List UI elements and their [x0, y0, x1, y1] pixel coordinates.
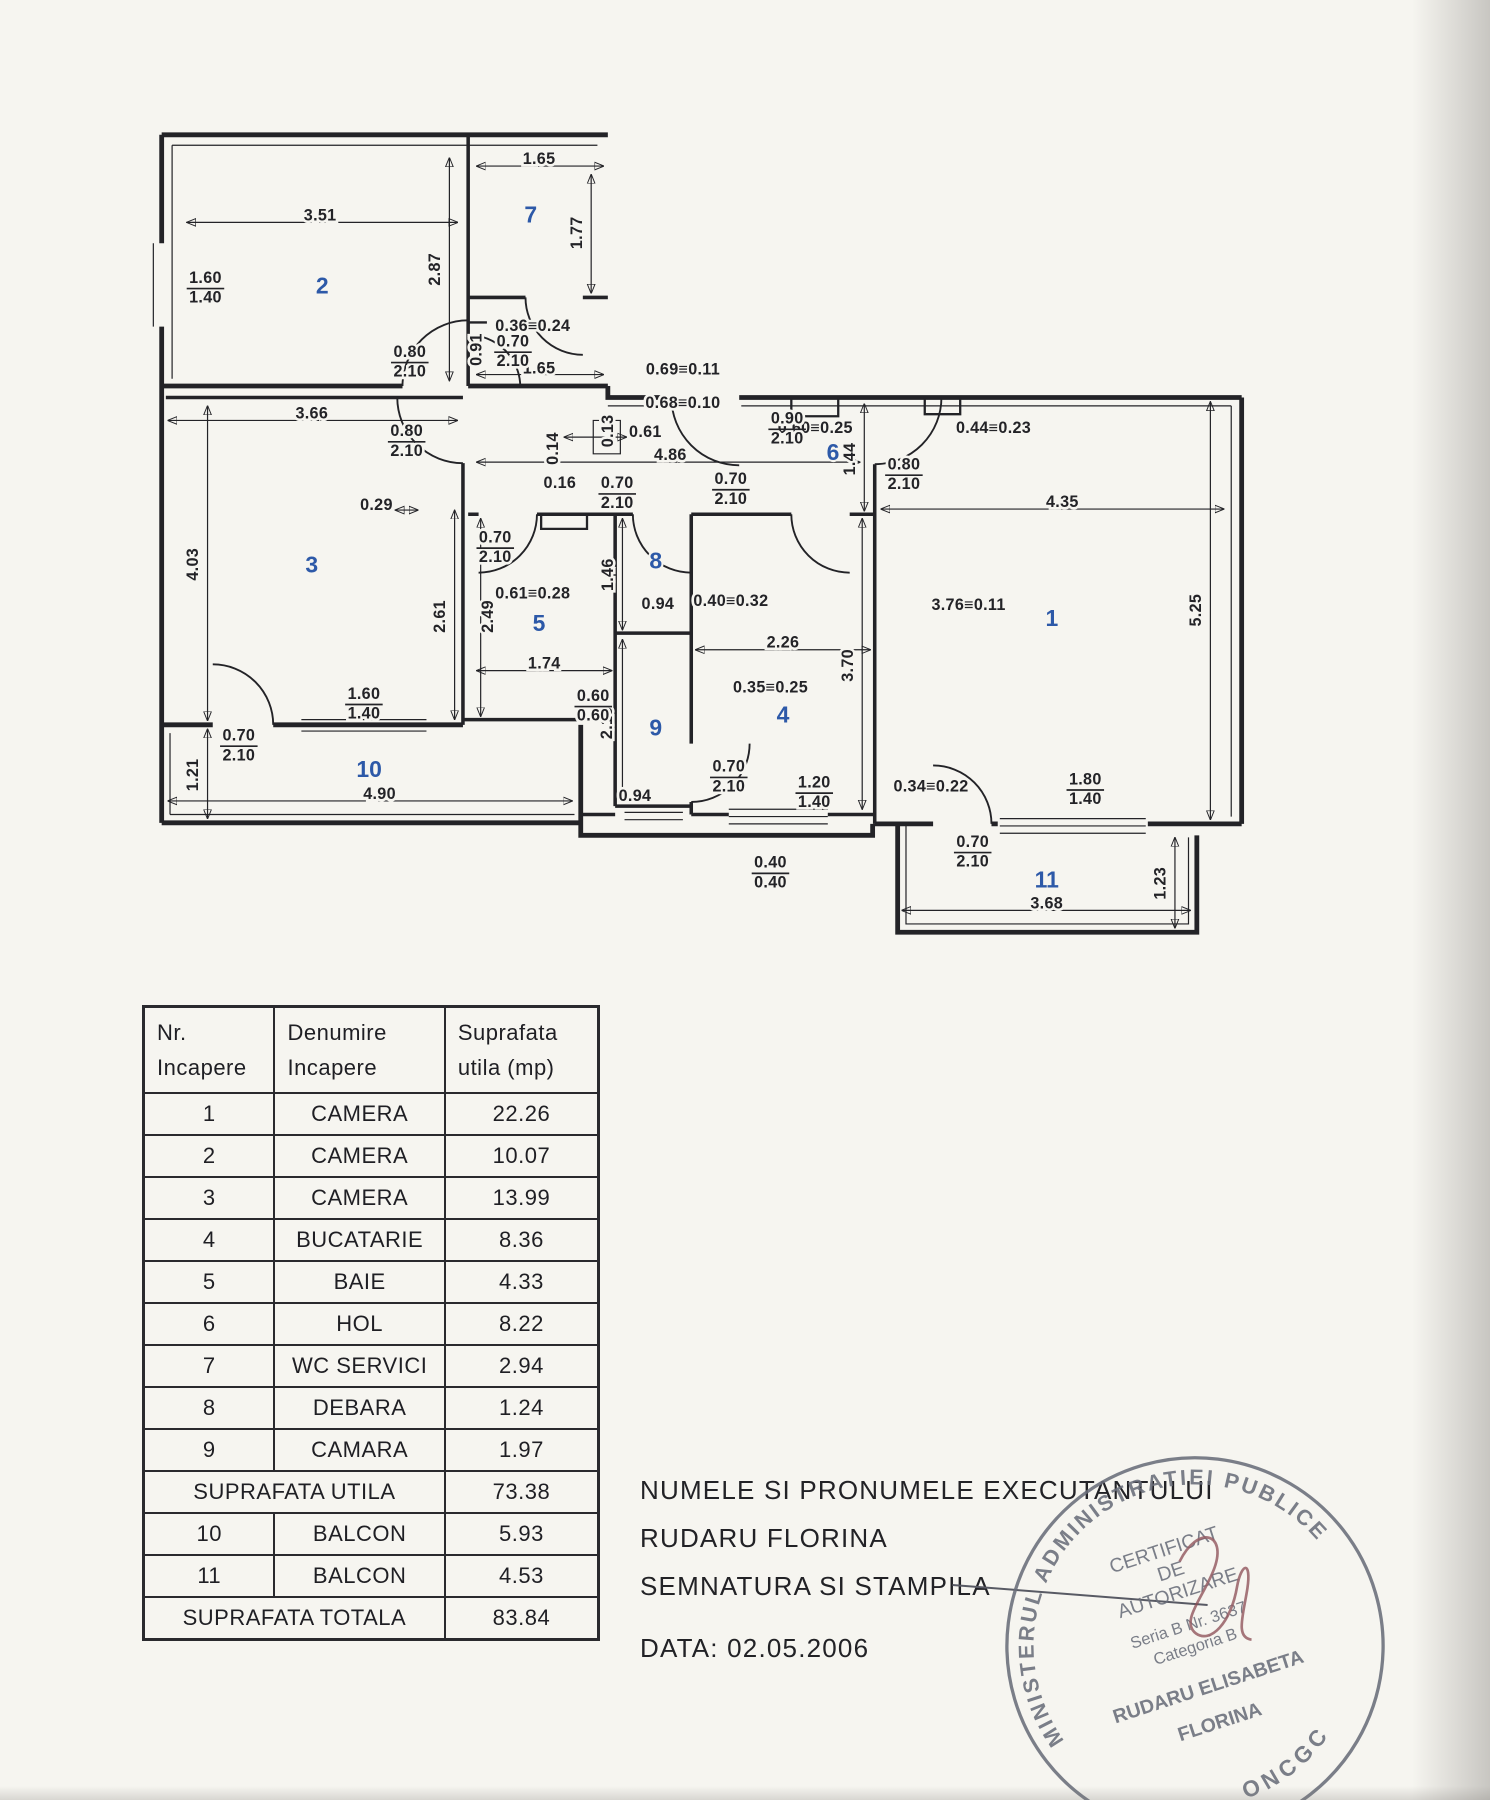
dimension-label: 0.60: [577, 687, 610, 705]
room-number: 3: [305, 552, 318, 578]
row-name: HOL: [274, 1303, 444, 1345]
room-area-table: Nr.Incapere DenumireIncapere Suprafataut…: [142, 1005, 600, 1641]
dimension-label: 0.70: [497, 332, 530, 350]
dimension-label: 0.80: [393, 343, 426, 361]
table-row: SUPRAFATA TOTALA83.84: [144, 1597, 599, 1640]
dimension-label: 2.10: [771, 429, 804, 447]
row-nr: 11: [144, 1555, 275, 1597]
dimension-label: 2.10: [601, 494, 634, 512]
dimension-label: 3.70: [839, 649, 857, 682]
plan-labels: 3.511.651.650.36≡0.240.69≡0.110.68≡0.100…: [184, 150, 1205, 912]
dimension-label: 0.80: [888, 455, 921, 473]
row-area: 22.26: [445, 1093, 599, 1135]
scan-edge-shadow-bottom: [0, 1786, 1490, 1800]
room-number: 11: [1035, 866, 1059, 892]
row-area: 5.93: [445, 1513, 599, 1555]
room-number: 5: [533, 610, 546, 636]
row-name: CAMERA: [274, 1135, 444, 1177]
table-row: 6HOL8.22: [144, 1303, 599, 1345]
dimension-label: 4.35: [1046, 493, 1079, 511]
row-nr: 2: [144, 1135, 275, 1177]
row-nr: 10: [144, 1513, 275, 1555]
dimension-label: 0.70: [601, 474, 634, 492]
table-row: 9CAMARA1.97: [144, 1429, 599, 1471]
table-row: 3CAMERA13.99: [144, 1177, 599, 1219]
dimension-label: 4.03: [184, 548, 202, 581]
dimension-label: 0.29: [360, 496, 393, 514]
row-nr: 5: [144, 1261, 275, 1303]
dimension-label: 1.60: [189, 269, 222, 287]
dimension-label: 2.61: [431, 600, 449, 633]
dimension-label: 2.10: [497, 352, 530, 370]
room-number: 8: [649, 547, 662, 573]
table-row: 5BAIE4.33: [144, 1261, 599, 1303]
dimension-label: 1.60: [348, 685, 381, 703]
dimension-label: 2.10: [888, 475, 921, 493]
dimension-label: 3.51: [304, 206, 337, 224]
room-number: 9: [649, 714, 662, 740]
dimension-label: 0.16: [544, 474, 577, 492]
date-label: DATA: 02.05.2006: [640, 1633, 869, 1664]
dimension-label: 0.70: [956, 833, 989, 851]
table-row: 2CAMERA10.07: [144, 1135, 599, 1177]
row-name: WC SERVICI: [274, 1345, 444, 1387]
dimension-label: 1.44: [841, 443, 859, 476]
dimension-label: 3.76≡0.11: [931, 596, 1005, 614]
row-label: SUPRAFATA TOTALA: [144, 1597, 445, 1640]
row-name: BALCON: [274, 1513, 444, 1555]
svg-text:FLORINA: FLORINA: [1175, 1698, 1264, 1746]
dimension-label: 0.70: [715, 470, 748, 488]
dimension-label: 0.13: [599, 415, 617, 448]
table-row: 7WC SERVICI2.94: [144, 1345, 599, 1387]
table-row: 4BUCATARIE8.36: [144, 1219, 599, 1261]
dimension-label: 0.34≡0.22: [893, 778, 968, 796]
dimension-label: 1.40: [189, 289, 222, 307]
stamp-center-text: CERTIFICAT DE AUTORIZARE Seria B Nr. 363…: [1066, 1509, 1318, 1763]
dimension-label: 2.10: [479, 548, 512, 566]
dimension-label: 1.40: [1069, 790, 1102, 808]
dimension-label: 0.40: [754, 854, 787, 872]
room-number: 4: [777, 702, 790, 728]
dimension-label: 1.21: [184, 759, 202, 792]
floor-plan-drawing: 3.511.651.650.36≡0.240.69≡0.110.68≡0.100…: [145, 118, 1250, 947]
row-area: 10.07: [445, 1135, 599, 1177]
dimension-label: 1.40: [798, 793, 831, 811]
row-nr: 4: [144, 1219, 275, 1261]
dimension-label: 0.70: [479, 528, 512, 546]
dimension-label: 0.60: [577, 707, 610, 725]
dimension-label: 0.90: [771, 410, 804, 428]
row-name: BALCON: [274, 1555, 444, 1597]
row-area: 4.53: [445, 1555, 599, 1597]
header-denumire: DenumireIncapere: [274, 1007, 444, 1094]
dimension-label: 2.49: [479, 600, 497, 633]
row-label: SUPRAFATA UTILA: [144, 1471, 445, 1513]
outer-walls: [162, 135, 1242, 932]
row-name: DEBARA: [274, 1387, 444, 1429]
dimension-label: 0.70: [222, 726, 255, 744]
dimension-label: 0.35≡0.25: [733, 679, 808, 697]
row-nr: 1: [144, 1093, 275, 1135]
row-nr: 6: [144, 1303, 275, 1345]
row-area: 8.22: [445, 1303, 599, 1345]
dimension-label: 0.94: [619, 787, 652, 805]
table-row: 11BALCON4.53: [144, 1555, 599, 1597]
dimension-label: 0.61: [629, 423, 662, 441]
row-area: 73.38: [445, 1471, 599, 1513]
dimension-label: 0.61≡0.28: [495, 585, 570, 603]
dimension-label: 1.74: [528, 655, 561, 673]
dimension-label: 2.10: [222, 746, 255, 764]
row-name: CAMARA: [274, 1429, 444, 1471]
dimension-label: 1.23: [1152, 867, 1170, 900]
scan-edge-shadow: [1412, 0, 1490, 1800]
signature-label: SEMNATURA SI STAMPILA: [640, 1571, 991, 1602]
scanned-document-page: 3.511.651.650.36≡0.240.69≡0.110.68≡0.100…: [0, 0, 1490, 1800]
dimension-label: 2.10: [715, 490, 748, 508]
dimension-label: 1.20: [798, 773, 831, 791]
dimension-label: 0.40: [754, 873, 787, 891]
dimension-label: 0.69≡0.11: [646, 361, 720, 379]
room-number: 7: [524, 201, 537, 227]
row-name: CAMERA: [274, 1177, 444, 1219]
row-area: 13.99: [445, 1177, 599, 1219]
dimension-label: 1.80: [1069, 770, 1102, 788]
header-nr: Nr.Incapere: [144, 1007, 275, 1094]
dimension-label: 2.87: [426, 253, 444, 286]
dimension-label: 0.68≡0.10: [645, 394, 720, 412]
dimension-label: 1.46: [599, 558, 617, 591]
row-area: 1.97: [445, 1429, 599, 1471]
header-suprafata: Suprafatautila (mp): [445, 1007, 599, 1094]
dimension-label: 0.91: [468, 333, 486, 366]
row-nr: 7: [144, 1345, 275, 1387]
dimension-label: 0.40≡0.32: [693, 592, 768, 610]
row-nr: 8: [144, 1387, 275, 1429]
dimension-label: 1.77: [568, 216, 586, 249]
dimension-label: 0.94: [642, 595, 675, 613]
dimension-label: 2.26: [767, 634, 800, 652]
room-number: 2: [316, 272, 329, 298]
table-row: 8DEBARA1.24: [144, 1387, 599, 1429]
row-nr: 3: [144, 1177, 275, 1219]
dimension-label: 4.86: [654, 446, 687, 464]
table-row: 1CAMERA22.26: [144, 1093, 599, 1135]
row-nr: 9: [144, 1429, 275, 1471]
row-name: CAMERA: [274, 1093, 444, 1135]
dimension-label: 0.80: [390, 422, 423, 440]
table-row: 10BALCON5.93: [144, 1513, 599, 1555]
row-area: 4.33: [445, 1261, 599, 1303]
row-area: 8.36: [445, 1219, 599, 1261]
row-name: BAIE: [274, 1261, 444, 1303]
table-row: SUPRAFATA UTILA73.38: [144, 1471, 599, 1513]
dimension-label: 1.40: [348, 705, 381, 723]
dimension-label: 2.10: [390, 442, 423, 460]
dimension-label: 3.68: [1030, 894, 1063, 912]
executor-name: RUDARU FLORINA: [640, 1523, 888, 1554]
room-number: 10: [356, 756, 382, 782]
row-area: 2.94: [445, 1345, 599, 1387]
dimension-label: 1.65: [523, 150, 556, 168]
dimension-label: 0.14: [544, 432, 562, 465]
dimension-label: 3.66: [295, 404, 328, 422]
dimension-label: 0.44≡0.23: [956, 419, 1031, 437]
room-number: 1: [1046, 605, 1059, 631]
dimension-label: 2.10: [393, 363, 426, 381]
dimension-label: 2.10: [956, 853, 989, 871]
dimension-label: 5.25: [1187, 594, 1205, 627]
authorization-stamp: MINISTERUL ADMINISTRATIEI PUBLICE ONCGC …: [955, 1430, 1435, 1800]
table-header-row: Nr.Incapere DenumireIncapere Suprafataut…: [144, 1007, 599, 1094]
dimension-label: 0.70: [712, 758, 745, 776]
row-area: 1.24: [445, 1387, 599, 1429]
dimension-label: 4.90: [363, 785, 396, 803]
row-area: 83.84: [445, 1597, 599, 1640]
room-number: 6: [827, 439, 840, 465]
dimension-label: 2.10: [712, 778, 745, 796]
row-name: BUCATARIE: [274, 1219, 444, 1261]
